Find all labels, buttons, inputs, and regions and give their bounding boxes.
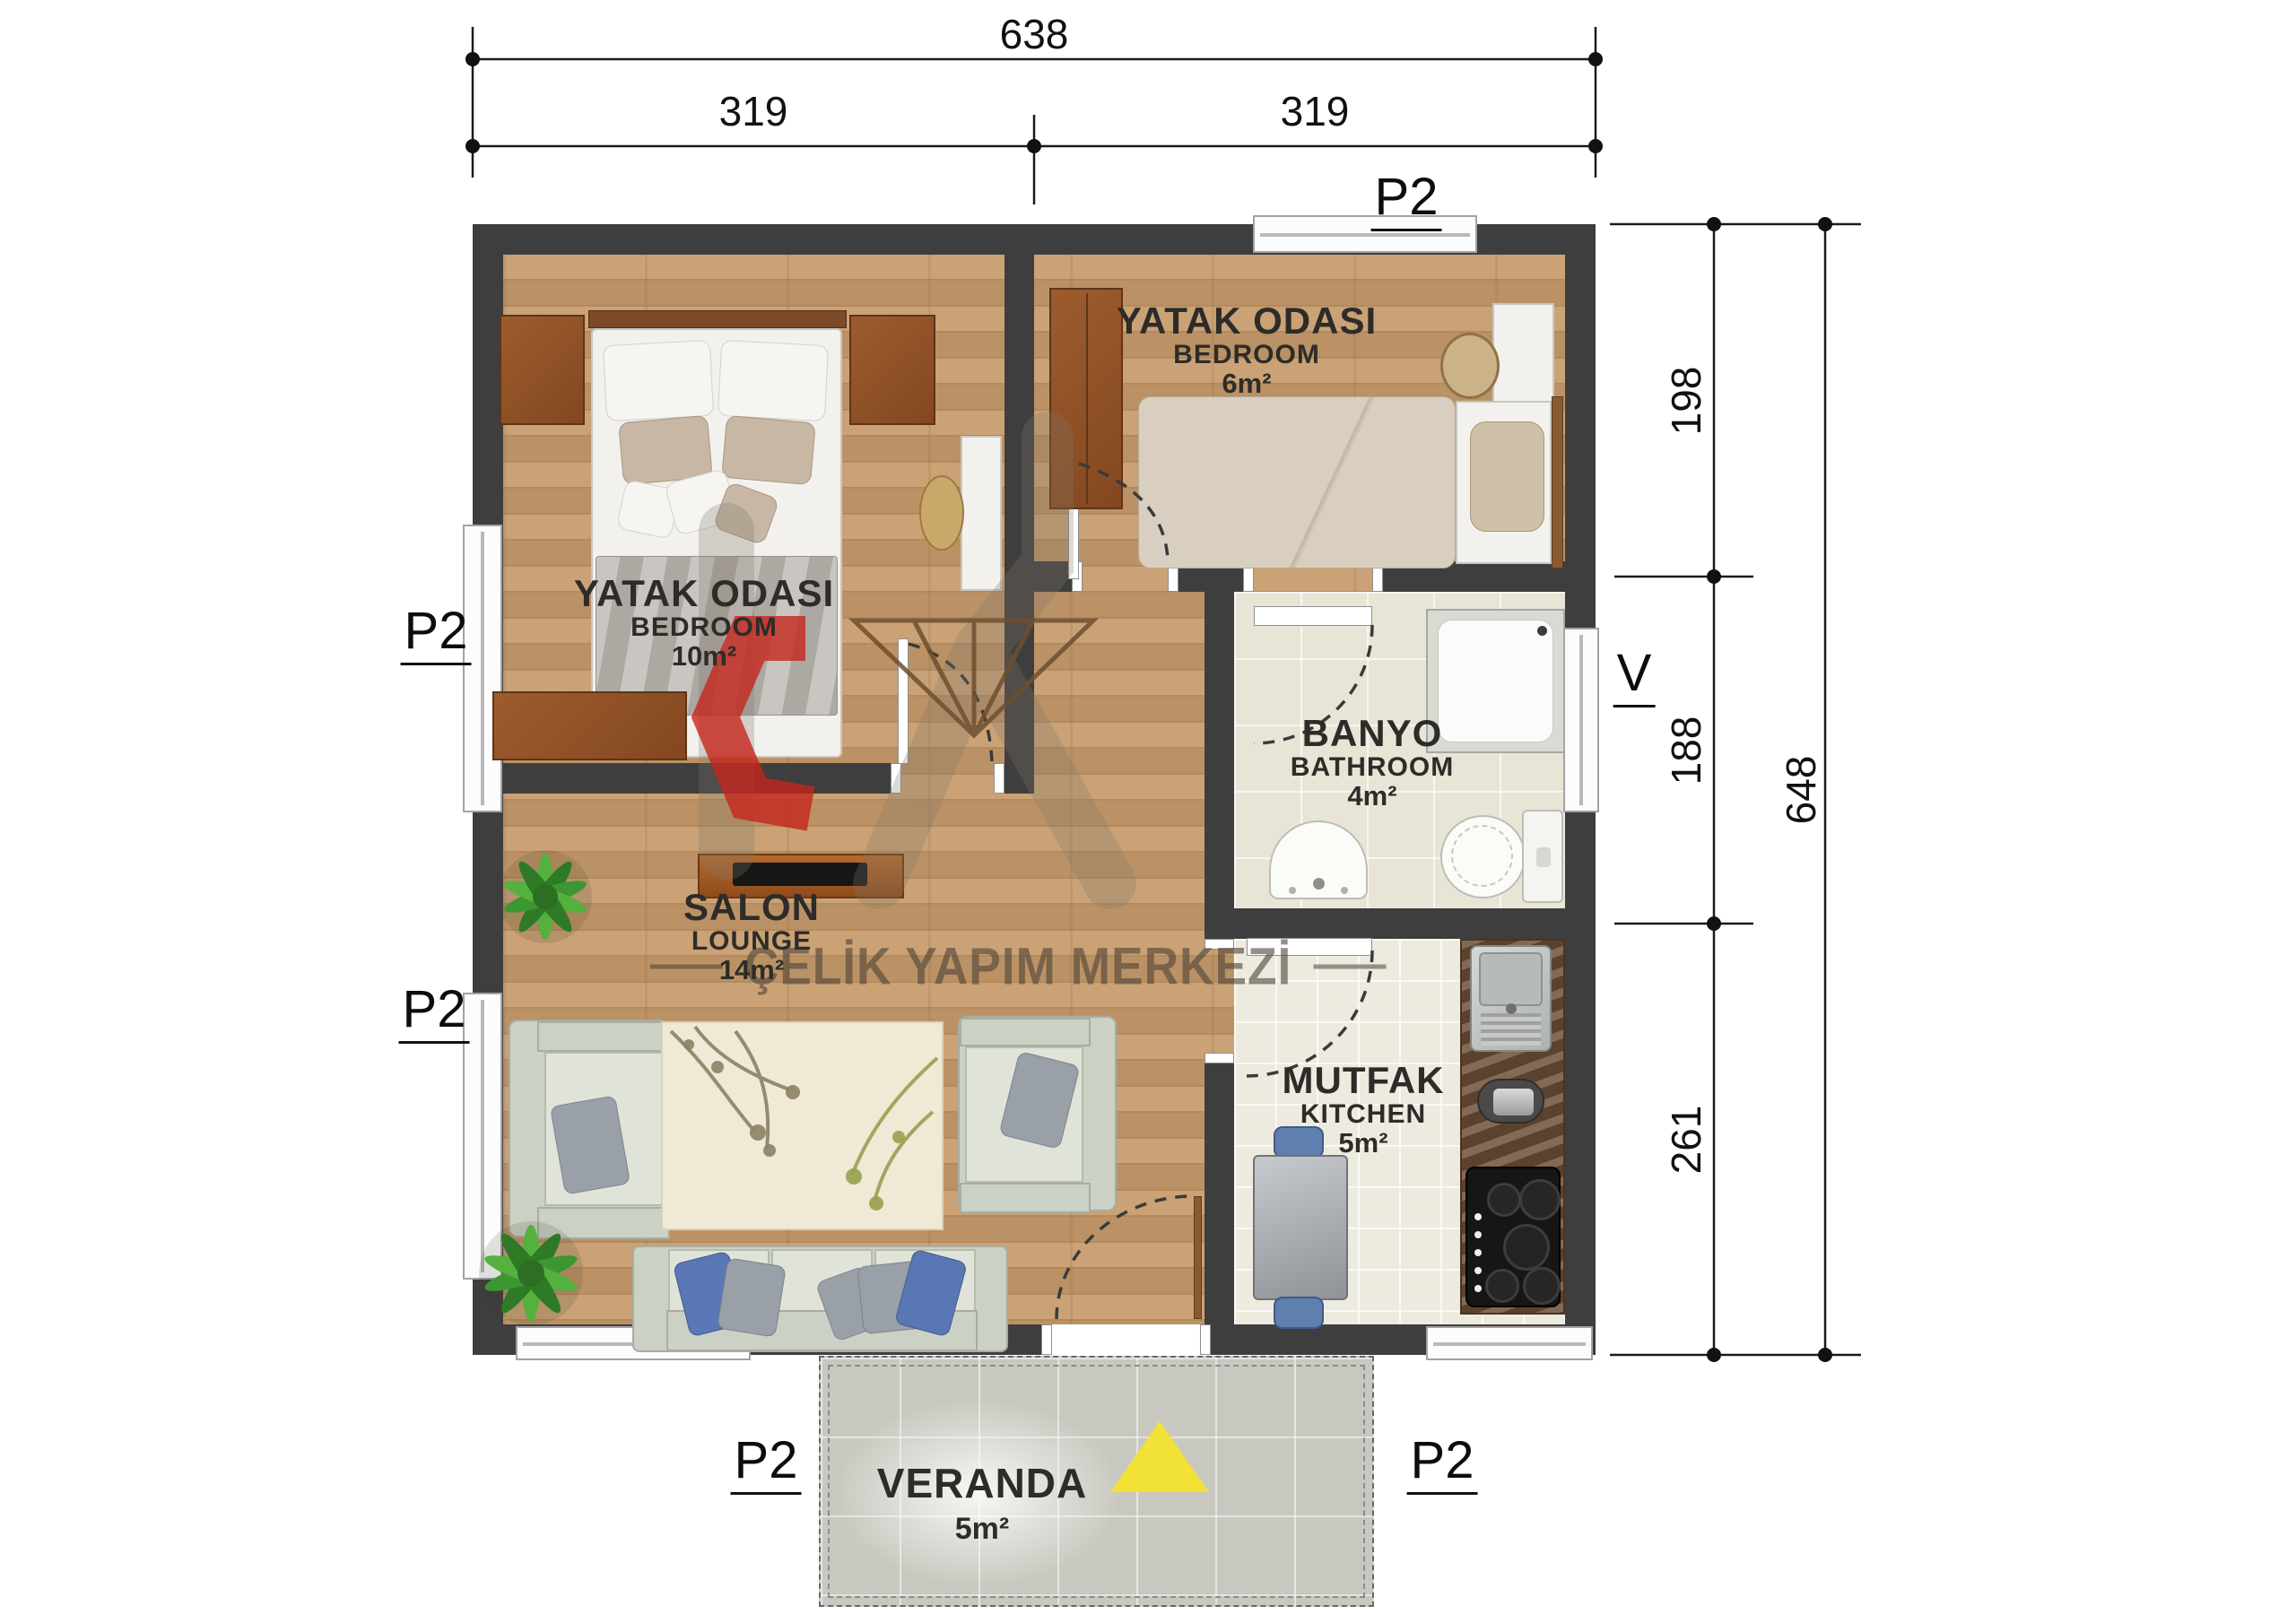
room-area: 10m²	[574, 642, 834, 672]
pillow	[717, 1257, 787, 1337]
bed-single-headboard	[1552, 396, 1563, 568]
bed-headboard-main	[588, 310, 847, 328]
door-bathroom	[1254, 606, 1372, 626]
room-label-bathroom: BANYO BATHROOM 4m²	[1291, 714, 1454, 811]
toilet-bowl	[1440, 815, 1526, 898]
room-title: YATAK ODASI	[574, 574, 834, 613]
wall-service-left-upper	[1205, 592, 1234, 939]
room-area: 5m²	[877, 1514, 1087, 1546]
wall-bedroom-lounge	[503, 763, 891, 794]
armchair-left	[509, 1020, 668, 1237]
dim-seg-top: 198	[1662, 367, 1710, 436]
door-bedroom-main	[898, 638, 909, 764]
chair-bedroom-small	[1440, 333, 1500, 399]
pillow	[717, 340, 829, 421]
room-label-bedroom-main: YATAK ODASI BEDROOM 10m²	[574, 574, 834, 671]
watermark-brand: ÇELİK YAPIM MERKEZİ	[744, 937, 1291, 997]
room-label-bedroom-small: YATAK ODASI BEDROOM 6m²	[1117, 301, 1377, 398]
pillow	[721, 415, 816, 485]
door-jamb	[1200, 1324, 1211, 1355]
dim-right-half: 319	[1281, 87, 1350, 135]
room-area: 14m²	[683, 956, 820, 985]
wall-bath-kitchen-divider	[1234, 908, 1565, 939]
desk-bedroom-main	[961, 436, 1002, 591]
window-tag-bottom-left: P2	[731, 1430, 802, 1495]
window-right-vent	[1563, 628, 1599, 812]
room-title: YATAK ODASI	[1117, 301, 1377, 341]
armchair-right	[958, 1016, 1117, 1211]
dim-left-half: 319	[719, 87, 788, 135]
dim-total-width: 638	[1000, 10, 1069, 58]
bed-single-duvet	[1138, 396, 1456, 568]
dresser	[492, 691, 687, 760]
door-jamb	[1205, 1053, 1234, 1063]
stove	[1465, 1167, 1561, 1307]
room-title: MUTFAK	[1283, 1061, 1445, 1100]
window-left-bedroom-main	[463, 525, 502, 812]
room-subtitle: BEDROOM	[1117, 341, 1377, 369]
door-jamb	[1041, 1324, 1052, 1355]
door-jamb	[891, 763, 901, 794]
sofa	[632, 1245, 1008, 1352]
wardrobe	[1049, 288, 1123, 509]
wall-bedrooms-divider	[1004, 255, 1034, 794]
pillow	[603, 340, 714, 421]
bed-single-pillow	[1470, 421, 1544, 532]
kitchen-chair	[1274, 1297, 1324, 1329]
floor-plan-canvas: 638 319 319 198 188 261 648 P2 P2 P2 P2 …	[0, 0, 2296, 1623]
chair-bedroom-main	[919, 475, 964, 551]
room-subtitle: KITCHEN	[1283, 1100, 1445, 1129]
door-jamb	[994, 763, 1004, 794]
toilet-tank	[1522, 810, 1563, 903]
kitchen-sink	[1470, 945, 1552, 1052]
dim-seg-bottom: 261	[1662, 1106, 1710, 1175]
room-subtitle: BATHROOM	[1291, 753, 1454, 782]
room-title: SALON	[683, 888, 820, 927]
room-area: 6m²	[1117, 369, 1377, 399]
nightstand-left	[500, 315, 585, 425]
room-subtitle: LOUNGE	[683, 927, 820, 956]
watermark-dash	[1313, 965, 1386, 969]
desk-bedroom-small	[1492, 303, 1554, 413]
room-subtitle: BEDROOM	[574, 613, 834, 642]
room-area: 4m²	[1291, 782, 1454, 811]
room-label-kitchen: MUTFAK KITCHEN 5m²	[1283, 1061, 1445, 1158]
room-area: 5m²	[1283, 1129, 1445, 1159]
window-tag-bottom-right: P2	[1407, 1430, 1478, 1495]
dim-total-height: 648	[1777, 756, 1825, 825]
vent-tag: V	[1613, 643, 1656, 707]
door-entrance	[1194, 1196, 1202, 1319]
kitchen-table	[1253, 1155, 1348, 1300]
kitchen-small-appliance	[1477, 1079, 1544, 1124]
room-title: BANYO	[1291, 714, 1454, 753]
nightstand-right	[849, 315, 935, 425]
dim-seg-mid: 188	[1662, 716, 1710, 785]
tv	[733, 863, 867, 886]
window-top-bedroom-small	[1253, 215, 1477, 253]
room-label-lounge: SALON LOUNGE 14m²	[683, 888, 820, 985]
room-label-veranda: VERANDA 5m²	[877, 1462, 1087, 1546]
window-tag-left-lower: P2	[399, 979, 470, 1044]
window-bottom-kitchen	[1426, 1326, 1593, 1360]
wall-service-left-lower	[1205, 1063, 1234, 1324]
wall-hall-stub	[1034, 561, 1072, 592]
window-tag-top: P2	[1371, 167, 1442, 231]
room-title: VERANDA	[877, 1462, 1087, 1505]
window-tag-left-upper: P2	[401, 601, 472, 665]
